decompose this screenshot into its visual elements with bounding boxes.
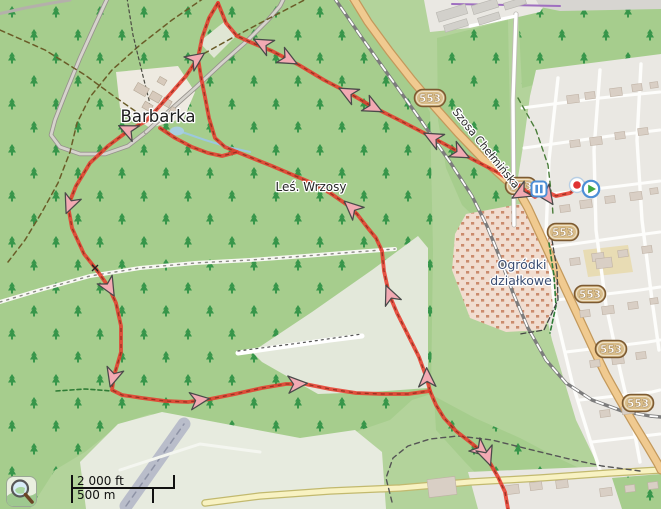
building xyxy=(638,127,649,135)
building xyxy=(600,487,613,496)
route-badge-text: 553 xyxy=(579,289,601,301)
building xyxy=(585,91,596,99)
map-viewport[interactable]: 553553553553553553 BarbarkaLeś. WrzosyOg… xyxy=(0,0,661,509)
scale-bar: 2 000 ft 500 m xyxy=(71,475,175,503)
building xyxy=(590,136,603,145)
route-badge-text: 553 xyxy=(627,398,649,410)
building xyxy=(630,191,643,200)
building xyxy=(648,481,659,489)
basemap-layer xyxy=(0,0,661,509)
pause-icon xyxy=(535,185,538,193)
building xyxy=(602,305,615,314)
route-badge-text: 553 xyxy=(419,93,441,105)
track-pause-marker[interactable] xyxy=(532,182,547,197)
building xyxy=(570,257,581,265)
track-start-marker[interactable] xyxy=(583,181,599,197)
building xyxy=(642,245,653,253)
building xyxy=(632,83,643,91)
building xyxy=(650,82,659,89)
landuse-label-ogrodki-line1: Ogródki xyxy=(498,257,547,272)
building xyxy=(610,87,623,96)
building xyxy=(636,351,647,359)
place-label-les-wrzosy: Leś. Wrzosy xyxy=(276,180,347,194)
scale-imperial: 2 000 ft xyxy=(71,475,175,489)
map-canvas[interactable]: 553553553553553553 BarbarkaLeś. WrzosyOg… xyxy=(0,0,661,509)
building xyxy=(427,476,457,497)
building xyxy=(580,199,593,208)
building xyxy=(600,409,611,417)
scale-metric: 500 m xyxy=(71,489,154,503)
place-label-barbarka: Barbarka xyxy=(121,107,196,126)
building xyxy=(650,298,659,305)
pause-icon xyxy=(540,185,543,193)
building xyxy=(580,309,591,317)
route-badge-text: 553 xyxy=(600,344,622,356)
building xyxy=(567,94,580,103)
route-badge-text: 553 xyxy=(552,227,574,239)
building xyxy=(650,188,659,195)
route-badge-553: 553 xyxy=(623,395,654,412)
route-badge-553: 553 xyxy=(596,341,627,358)
building xyxy=(556,479,569,488)
building xyxy=(560,204,571,212)
building xyxy=(530,481,543,490)
osm-logo xyxy=(6,476,37,507)
route-badge-553: 553 xyxy=(575,286,606,303)
building xyxy=(628,301,639,309)
route-badge-553: 553 xyxy=(415,90,446,107)
route-badge-553: 553 xyxy=(548,224,579,241)
building xyxy=(570,139,581,147)
building xyxy=(625,484,636,492)
building xyxy=(590,359,601,367)
building xyxy=(615,131,626,139)
record-icon xyxy=(573,181,581,189)
building xyxy=(605,195,616,203)
landuse-label-ogrodki-line2: działkowe xyxy=(490,273,552,288)
building xyxy=(595,257,612,269)
building xyxy=(618,249,629,257)
